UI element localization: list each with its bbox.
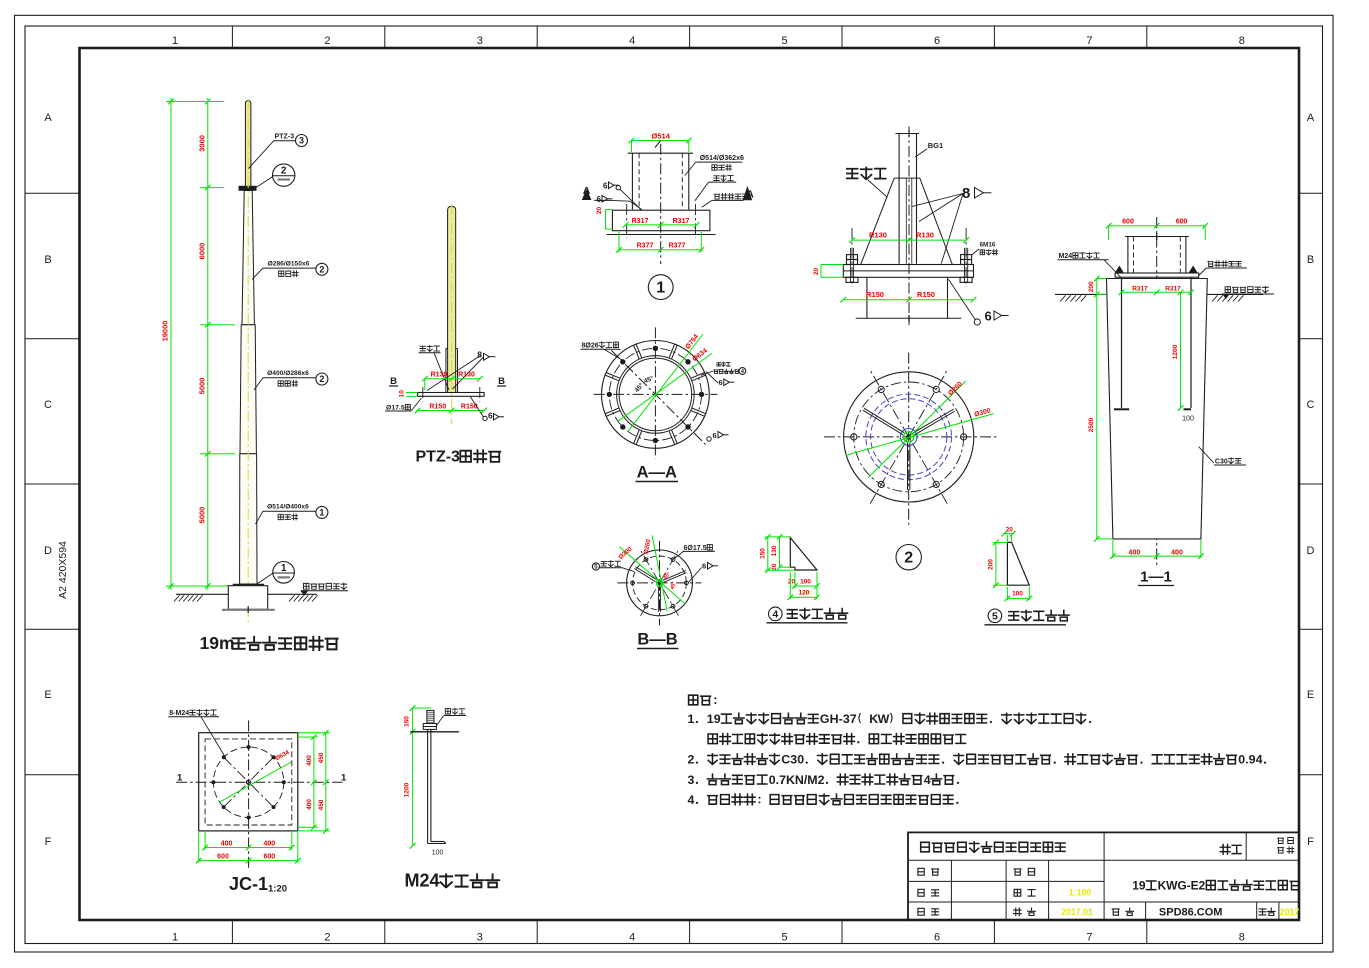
svg-text:600: 600 xyxy=(263,853,275,860)
svg-text:20: 20 xyxy=(596,207,603,215)
svg-text:10: 10 xyxy=(398,390,405,398)
svg-text:1: 1 xyxy=(172,35,178,47)
svg-text:B: B xyxy=(498,376,505,387)
svg-text:6: 6 xyxy=(597,195,602,204)
svg-text:6: 6 xyxy=(488,411,493,421)
svg-text:100: 100 xyxy=(800,578,811,585)
svg-text:20: 20 xyxy=(813,268,820,276)
svg-text:400: 400 xyxy=(263,840,275,847)
svg-text:Ø514: Ø514 xyxy=(652,132,671,141)
svg-text:1: 1 xyxy=(172,932,178,944)
svg-text:2: 2 xyxy=(324,932,330,944)
svg-text:2: 2 xyxy=(319,264,324,274)
svg-text:A—A: A—A xyxy=(637,464,677,482)
svg-text:1: 1 xyxy=(341,773,347,784)
svg-text:1—1: 1—1 xyxy=(1140,569,1172,586)
svg-text:B—B: B—B xyxy=(637,631,677,649)
svg-text:D: D xyxy=(44,545,52,557)
svg-text:2: 2 xyxy=(688,753,695,767)
svg-text:200: 200 xyxy=(988,559,995,570)
svg-text:6Ø17.5: 6Ø17.5 xyxy=(684,545,707,552)
svg-text:8: 8 xyxy=(1239,35,1245,47)
svg-text:150: 150 xyxy=(760,548,767,559)
svg-text:2500: 2500 xyxy=(1088,417,1095,432)
svg-text:2017.01: 2017.01 xyxy=(1061,907,1093,917)
svg-text:B: B xyxy=(44,254,51,266)
svg-text:R130: R130 xyxy=(916,231,934,240)
svg-text:450: 450 xyxy=(318,799,325,810)
svg-text:1:100: 1:100 xyxy=(1069,888,1092,898)
svg-text:C30: C30 xyxy=(1215,458,1228,465)
svg-text:M24: M24 xyxy=(1059,253,1073,260)
svg-text:2017: 2017 xyxy=(1280,907,1300,917)
svg-text:4: 4 xyxy=(924,773,931,787)
svg-text:Ø286/Ø150x6: Ø286/Ø150x6 xyxy=(268,260,310,267)
svg-text:R317: R317 xyxy=(632,218,649,225)
svg-text:1200: 1200 xyxy=(1172,344,1179,359)
svg-text:6: 6 xyxy=(713,431,717,440)
svg-text:R130: R130 xyxy=(458,371,475,378)
svg-text:F: F xyxy=(1307,836,1314,848)
svg-text:19000: 19000 xyxy=(161,321,170,342)
svg-text:C: C xyxy=(1307,399,1315,411)
svg-text:3: 3 xyxy=(477,932,483,944)
svg-text:6000: 6000 xyxy=(197,243,206,260)
svg-text:C: C xyxy=(44,399,52,411)
svg-text:1: 1 xyxy=(177,773,183,784)
svg-text:4: 4 xyxy=(772,609,778,621)
svg-text:R130: R130 xyxy=(869,231,887,240)
svg-text:1:20: 1:20 xyxy=(268,884,287,895)
svg-text:1: 1 xyxy=(281,563,287,574)
svg-text:SPD86.COM: SPD86.COM xyxy=(1159,907,1223,919)
svg-text:A: A xyxy=(44,112,52,124)
svg-text:Ø514/Ø362x6: Ø514/Ø362x6 xyxy=(700,155,744,162)
svg-text:3: 3 xyxy=(477,35,483,47)
svg-text:PTZ-3: PTZ-3 xyxy=(416,449,461,466)
svg-text:E: E xyxy=(1307,689,1314,701)
svg-text:R377: R377 xyxy=(669,242,686,249)
svg-text:3000: 3000 xyxy=(197,135,206,152)
svg-text:6: 6 xyxy=(934,35,940,47)
svg-text:R130: R130 xyxy=(431,371,448,378)
svg-text:R150: R150 xyxy=(917,290,935,299)
svg-text:400: 400 xyxy=(1129,549,1141,556)
svg-text:7: 7 xyxy=(1086,932,1092,944)
svg-text:5000: 5000 xyxy=(197,378,206,395)
svg-text:1200: 1200 xyxy=(404,782,411,797)
svg-text:1: 1 xyxy=(656,280,665,297)
svg-text:A: A xyxy=(1307,112,1315,124)
svg-text:E: E xyxy=(44,689,51,701)
svg-text:5: 5 xyxy=(782,932,788,944)
svg-text:20: 20 xyxy=(1006,526,1014,533)
svg-text:400: 400 xyxy=(306,755,313,766)
svg-text:PTZ-3: PTZ-3 xyxy=(275,134,295,141)
svg-text:KWG-E2: KWG-E2 xyxy=(1158,879,1206,893)
svg-text:400: 400 xyxy=(221,840,233,847)
svg-text:100: 100 xyxy=(432,850,444,857)
svg-text:19: 19 xyxy=(707,712,721,726)
svg-text:0.7KN/M2: 0.7KN/M2 xyxy=(769,773,825,787)
svg-text:8: 8 xyxy=(477,350,482,360)
svg-text:8-M24: 8-M24 xyxy=(169,710,189,717)
svg-text:5: 5 xyxy=(992,610,998,622)
svg-text:8Ø26: 8Ø26 xyxy=(582,342,599,349)
svg-text:GH-37: GH-37 xyxy=(820,712,857,726)
svg-text:D: D xyxy=(1307,545,1315,557)
svg-text:100: 100 xyxy=(1012,591,1023,598)
svg-text:600: 600 xyxy=(217,853,229,860)
svg-text:Ø17.5: Ø17.5 xyxy=(386,405,405,412)
svg-text:6: 6 xyxy=(719,378,723,387)
svg-text:600: 600 xyxy=(1176,219,1188,226)
svg-text:BG1: BG1 xyxy=(928,141,943,150)
svg-text:4: 4 xyxy=(629,35,635,47)
svg-text:200: 200 xyxy=(1088,281,1095,292)
svg-text:1: 1 xyxy=(688,712,695,726)
svg-text:R317: R317 xyxy=(673,218,690,225)
svg-text:20: 20 xyxy=(788,578,796,585)
svg-text:Ø514/Ø400x6: Ø514/Ø400x6 xyxy=(267,504,309,511)
svg-text:A2 420X594: A2 420X594 xyxy=(57,541,69,599)
svg-text:150: 150 xyxy=(404,716,411,727)
svg-text:2: 2 xyxy=(319,374,324,384)
svg-text:130: 130 xyxy=(771,545,778,556)
svg-text:R377: R377 xyxy=(637,242,654,249)
svg-text:0.94: 0.94 xyxy=(1238,753,1262,767)
svg-text:19: 19 xyxy=(1132,879,1146,893)
svg-text:8: 8 xyxy=(962,185,970,202)
svg-text:KW: KW xyxy=(869,712,889,726)
svg-text:M24: M24 xyxy=(405,871,440,891)
svg-text:R150: R150 xyxy=(866,290,884,299)
svg-text:5000: 5000 xyxy=(197,507,206,524)
svg-text:2: 2 xyxy=(281,165,287,176)
svg-text:R150: R150 xyxy=(429,403,446,410)
svg-text:4: 4 xyxy=(688,793,695,807)
svg-text:6M16: 6M16 xyxy=(980,242,996,249)
svg-text:JC-1: JC-1 xyxy=(229,874,268,894)
svg-text:120: 120 xyxy=(799,590,810,597)
svg-text:7: 7 xyxy=(1086,35,1092,47)
svg-text:6: 6 xyxy=(934,932,940,944)
svg-text:6: 6 xyxy=(985,309,992,324)
svg-text:R317: R317 xyxy=(1165,285,1181,292)
svg-text:B: B xyxy=(1307,254,1314,266)
svg-text:6: 6 xyxy=(702,562,706,571)
svg-text:R317: R317 xyxy=(1132,285,1148,292)
svg-text:F: F xyxy=(45,836,52,848)
svg-text:19m: 19m xyxy=(200,633,235,653)
svg-text:B: B xyxy=(390,376,397,387)
svg-text:5: 5 xyxy=(782,35,788,47)
svg-text:100: 100 xyxy=(1182,416,1194,423)
svg-text:3: 3 xyxy=(688,773,695,787)
svg-text:600: 600 xyxy=(1122,219,1134,226)
svg-text:2: 2 xyxy=(324,35,330,47)
svg-text:Ø400/Ø286x6: Ø400/Ø286x6 xyxy=(267,370,309,377)
svg-text:400: 400 xyxy=(306,799,313,810)
svg-text:C30: C30 xyxy=(781,753,804,767)
svg-text:1: 1 xyxy=(319,508,324,518)
svg-text:3: 3 xyxy=(299,136,304,146)
svg-text:400: 400 xyxy=(1171,549,1183,556)
svg-text:450: 450 xyxy=(318,752,325,763)
svg-text:8: 8 xyxy=(1239,932,1245,944)
svg-text:4: 4 xyxy=(629,932,635,944)
svg-text:6: 6 xyxy=(603,182,608,191)
svg-text:2: 2 xyxy=(904,550,913,567)
